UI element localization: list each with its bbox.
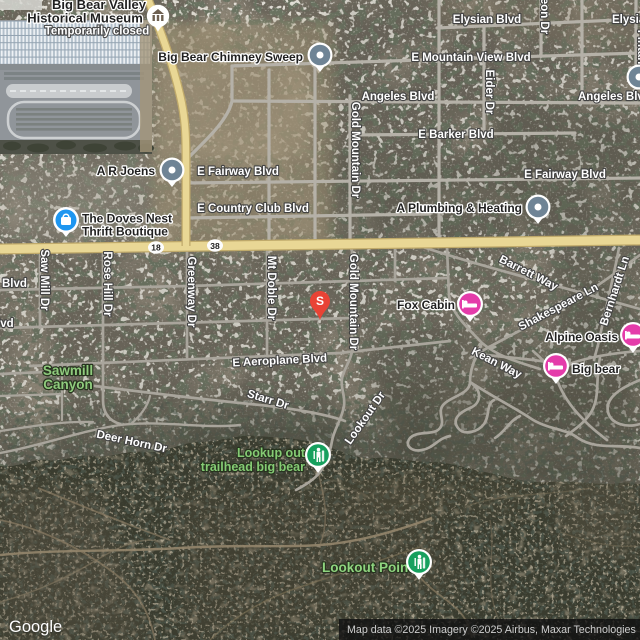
svg-text:Elysian Blvd: Elysian Blvd	[453, 14, 521, 26]
svg-text:Gold Mountain Dr: Gold Mountain Dr	[347, 254, 359, 351]
svg-text:Big Bear Chimney Sweep: Big Bear Chimney Sweep	[158, 50, 303, 64]
svg-text:Thrift Boutique: Thrift Boutique	[82, 225, 168, 239]
svg-text:lvd: lvd	[0, 318, 14, 330]
svg-text:A R Joens: A R Joens	[97, 164, 156, 178]
svg-text:Sawmill: Sawmill	[43, 363, 93, 378]
svg-text:Greenway Dr: Greenway Dr	[185, 257, 197, 328]
svg-text:38: 38	[210, 241, 220, 251]
svg-text:Alpine Oasis: Alpine Oasis	[545, 330, 618, 344]
svg-text:Elysian Blv: Elysian Blv	[612, 14, 640, 26]
svg-text:Map data ©2025 Imagery ©2025 A: Map data ©2025 Imagery ©2025 Airbus, Max…	[347, 624, 636, 636]
svg-text:eon Dr: eon Dr	[538, 0, 550, 35]
svg-text:A Plumbing & Heating: A Plumbing & Heating	[396, 201, 522, 215]
svg-text:Temporarily closed: Temporarily closed	[45, 26, 150, 38]
svg-text:The Doves Nest: The Doves Nest	[82, 212, 172, 226]
svg-text:Eider Dr: Eider Dr	[483, 70, 495, 115]
svg-text:S: S	[316, 294, 324, 308]
svg-text:Angeles Blvd: Angeles Blvd	[362, 91, 435, 103]
svg-text:Big bear: Big bear	[572, 362, 620, 376]
svg-text:Google: Google	[9, 618, 62, 636]
svg-text:Mt Doble Dr: Mt Doble Dr	[265, 256, 277, 321]
svg-text:Rose Hill Dr: Rose Hill Dr	[101, 251, 113, 317]
svg-text:E Barker Blvd: E Barker Blvd	[418, 129, 493, 141]
svg-text:E Fairway Blvd: E Fairway Blvd	[197, 166, 279, 178]
svg-text:Canyon: Canyon	[43, 377, 93, 392]
svg-text:E Mountain View Blvd: E Mountain View Blvd	[411, 52, 530, 64]
svg-text:Gold Mountain Dr: Gold Mountain Dr	[349, 102, 361, 199]
svg-text:18: 18	[151, 243, 161, 253]
svg-text:Lookout Point: Lookout Point	[322, 560, 413, 575]
svg-text:Angeles Blv: Angeles Blv	[578, 91, 640, 103]
svg-text:Lookup out: Lookup out	[237, 446, 306, 460]
svg-text:E Country Club Blvd: E Country Club Blvd	[197, 203, 309, 215]
svg-text:Historical Museum: Historical Museum	[27, 11, 143, 26]
svg-text:Blvd: Blvd	[2, 278, 27, 290]
svg-text:Fox Cabin: Fox Cabin	[397, 298, 455, 312]
svg-text:E Fairway Blvd: E Fairway Blvd	[524, 169, 606, 181]
svg-text:trailhead big bear: trailhead big bear	[201, 460, 305, 474]
svg-text:Saw Mill Dr: Saw Mill Dr	[38, 249, 50, 311]
